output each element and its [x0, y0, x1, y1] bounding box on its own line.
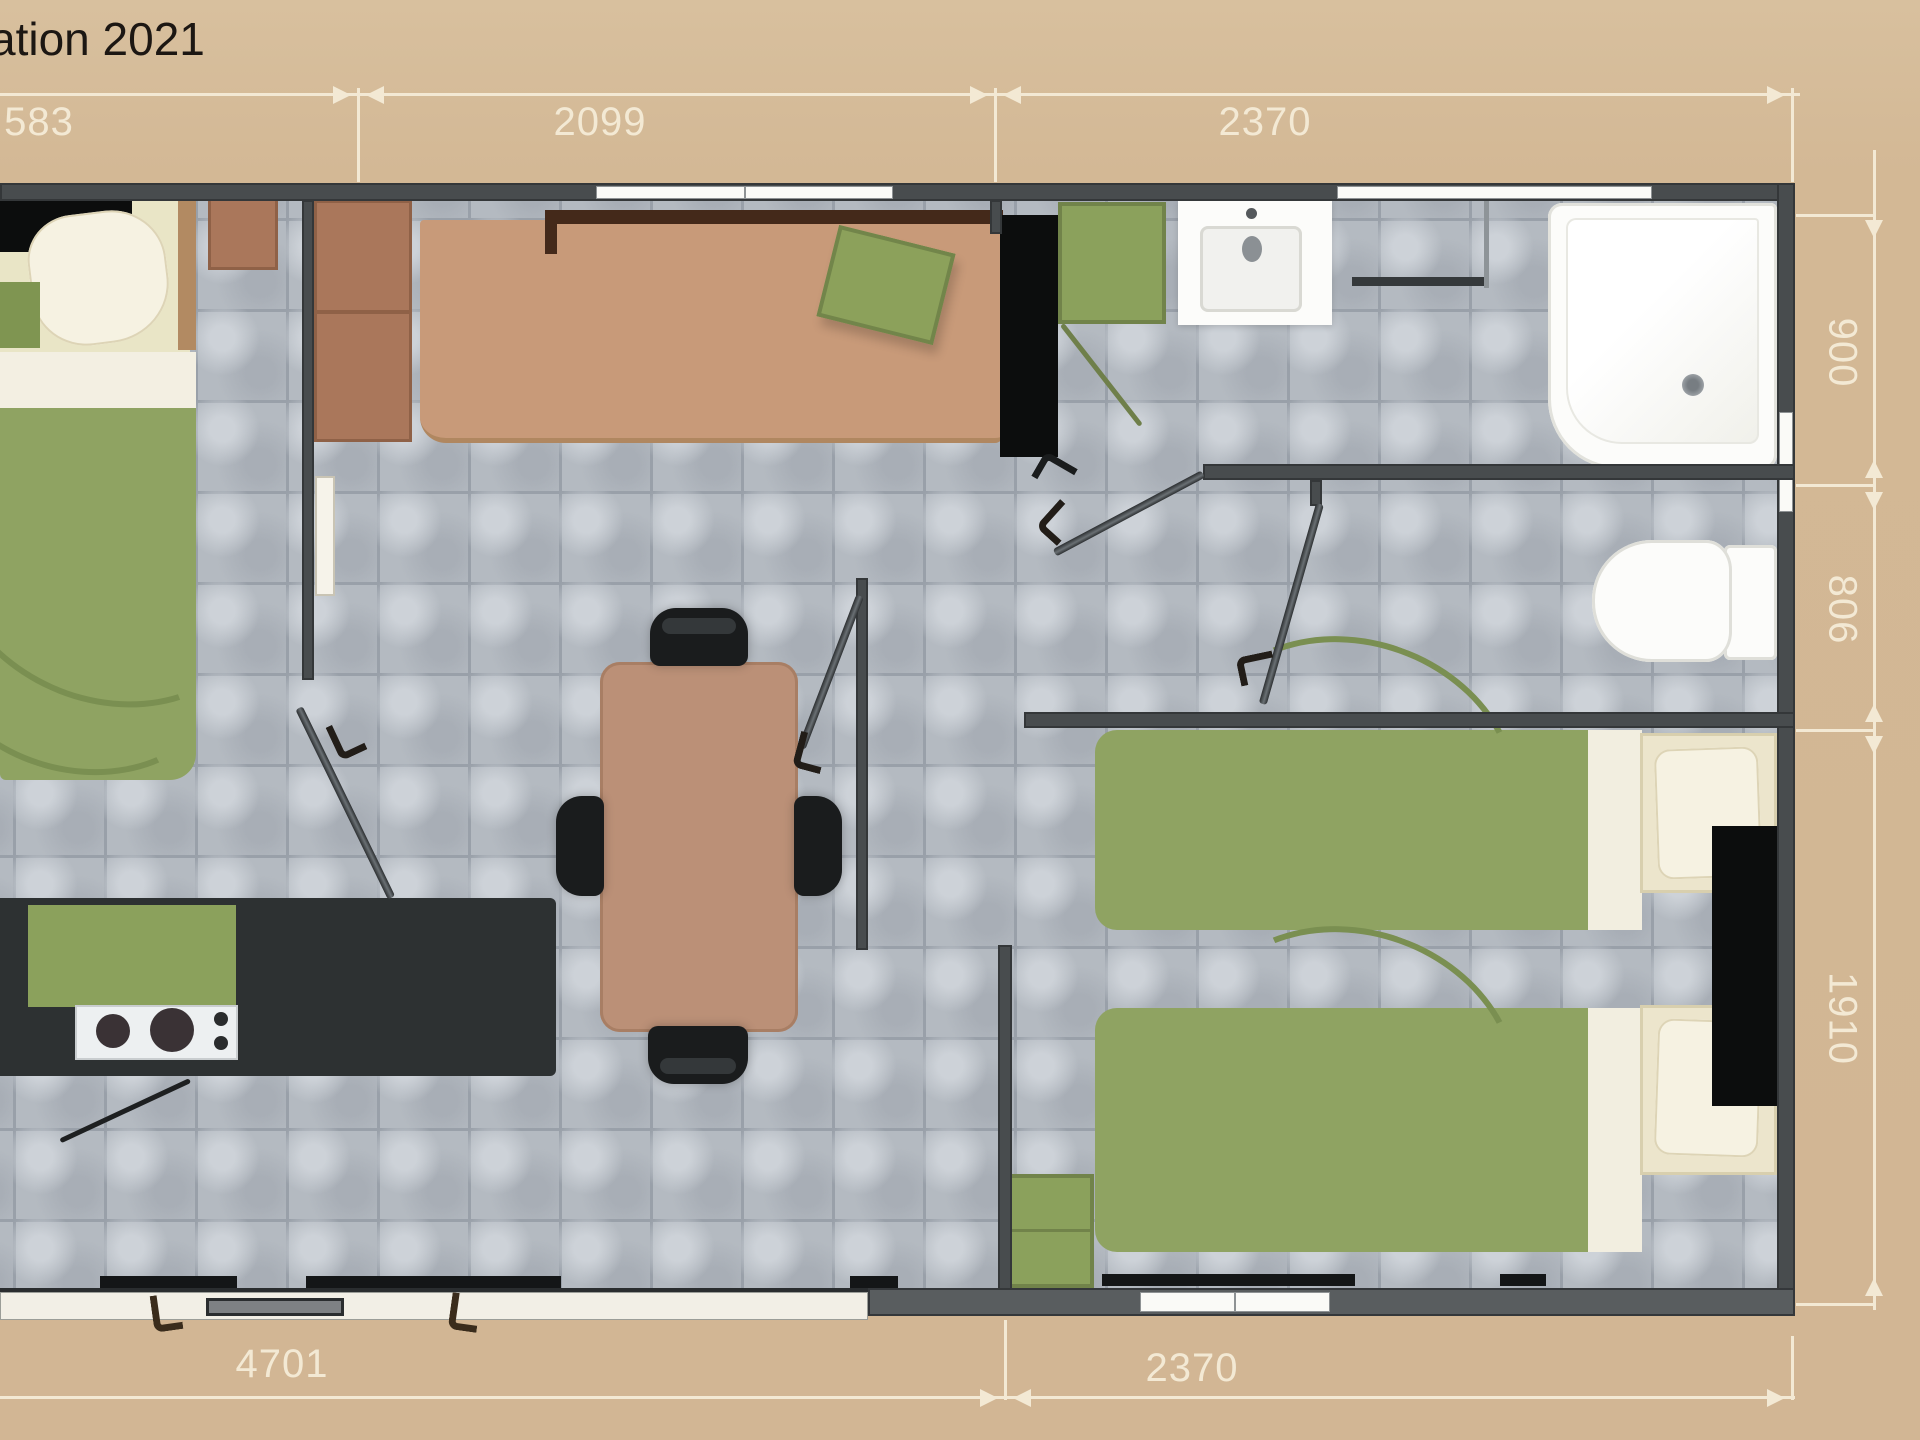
window-mullion — [1234, 1292, 1236, 1312]
dimension-tick — [1004, 1320, 1007, 1400]
window-top-bathroom — [1337, 186, 1652, 199]
dimension-tick — [1796, 484, 1876, 487]
tv-cabinet — [1000, 215, 1058, 457]
bed-side-panel — [178, 200, 196, 350]
towel-bar — [1352, 277, 1487, 286]
bedroom-door-leaf — [315, 476, 335, 596]
dimension-arrow — [1003, 86, 1021, 104]
dimension-arrow — [980, 1389, 998, 1407]
dimension-tick — [994, 88, 997, 182]
dimension-arrow — [333, 86, 351, 104]
stove-knob — [214, 1012, 228, 1026]
dimension-arrow — [1865, 460, 1883, 478]
dimension-arrow — [366, 86, 384, 104]
dining-chair — [556, 796, 604, 896]
dimension-arrow — [1865, 220, 1883, 238]
dimension-tick — [1791, 1336, 1794, 1400]
dimension-tick — [1796, 1303, 1876, 1306]
dimension-arrow — [1865, 492, 1883, 510]
sofa-backrest-rail-end — [545, 210, 557, 254]
dimension-arrow — [1865, 1278, 1883, 1296]
dim-label-right-top: 900 — [1820, 293, 1865, 413]
dining-chair — [650, 608, 748, 666]
kitchen-worktop — [28, 905, 236, 1007]
dimension-tick — [357, 88, 360, 182]
shower-screen — [1484, 200, 1489, 288]
kids-wardrobe — [1712, 826, 1777, 1106]
toilet-bowl — [1592, 540, 1732, 662]
wall-stub-bathroom — [990, 200, 1002, 234]
dim-label-top-middle: 2099 — [530, 100, 670, 145]
stove-knob — [214, 1036, 228, 1050]
shower-drain-icon — [1682, 374, 1704, 396]
outer-wall-bottom — [868, 1288, 1795, 1316]
sliding-door-panel — [206, 1298, 344, 1316]
window-right-toilet — [1779, 412, 1793, 512]
bathroom-cabinet — [1058, 202, 1166, 324]
master-cushion — [0, 282, 40, 348]
stove-burner — [150, 1008, 194, 1052]
shower-tray-inner — [1566, 218, 1759, 444]
single-bed-sheet-band — [1588, 1008, 1642, 1252]
wall-kids-top — [1024, 712, 1795, 728]
dim-label-bottom-left: 4701 — [212, 1342, 352, 1387]
wall-master-bedroom — [302, 200, 314, 680]
dimension-tick — [1796, 214, 1876, 217]
floor-plan-image: ation 2021 — [0, 0, 1920, 1440]
door-handle-icon — [150, 1292, 184, 1333]
bed-frame-bar — [1102, 1274, 1355, 1286]
page-title: ation 2021 — [0, 12, 205, 66]
dimension-tick — [1796, 729, 1876, 732]
sliding-door-glazing — [0, 1288, 868, 1320]
door-frame-bar — [306, 1276, 561, 1288]
dining-chair — [794, 796, 842, 896]
bed-frame-bar — [1500, 1274, 1546, 1286]
dimension-arrow — [1865, 704, 1883, 722]
dimension-line-bottom — [0, 1396, 1795, 1399]
dimension-arrow — [970, 86, 988, 104]
dimension-arrow — [1767, 1389, 1785, 1407]
door-handle-icon — [448, 1292, 482, 1333]
door-frame-bar — [100, 1276, 237, 1288]
outer-wall-right — [1777, 183, 1795, 1316]
dim-label-top-right: 2370 — [1195, 100, 1335, 145]
dimension-line-top — [0, 93, 1800, 96]
sofa-backrest-rail — [545, 210, 1003, 224]
single-bed-sheet-band — [1588, 730, 1642, 930]
dim-label-bottom-right: 2370 — [1122, 1346, 1262, 1391]
faucet-icon — [1242, 236, 1262, 262]
dim-label-top-left: 583 — [0, 100, 94, 145]
window-mullion — [744, 186, 746, 199]
storage-cabinet — [314, 200, 412, 442]
faucet-icon — [1246, 208, 1257, 219]
dining-table — [600, 662, 798, 1032]
dimension-arrow — [1865, 736, 1883, 754]
dim-label-right-bottom: 1910 — [1820, 959, 1865, 1079]
dimension-arrow — [1013, 1389, 1031, 1407]
kids-cabinet-shelf-line — [1008, 1229, 1094, 1232]
door-frame-bar — [850, 1276, 898, 1288]
wall-door-jamb — [1310, 480, 1322, 506]
dimension-arrow — [1767, 86, 1785, 104]
stove-burner — [96, 1014, 130, 1048]
master-nightstand — [208, 198, 278, 270]
dim-label-right-middle: 806 — [1820, 550, 1865, 670]
master-sheet-band — [0, 352, 196, 408]
wall-kids-left — [998, 945, 1012, 1290]
storage-cabinet-shelf-line — [314, 310, 412, 314]
wall-bathroom-bottom — [1203, 464, 1795, 480]
dimension-tick — [1791, 88, 1794, 182]
wall-hallway — [856, 578, 868, 950]
dining-chair — [648, 1026, 748, 1084]
